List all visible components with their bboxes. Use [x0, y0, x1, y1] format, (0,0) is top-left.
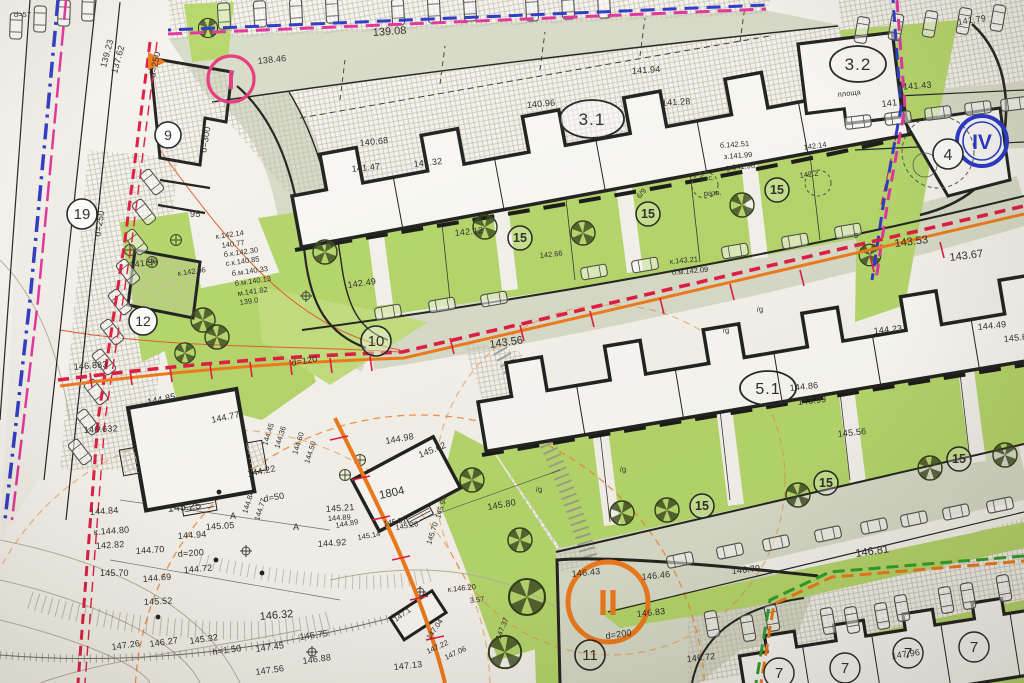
yard-label-15: 15 [819, 476, 833, 490]
elevation-label: 144.84 [89, 505, 118, 517]
street-number-11: 11 [582, 647, 598, 664]
building-label-7: 7 [841, 660, 849, 677]
note-label: /g [756, 304, 763, 314]
building-label-3-2: 3.2 [845, 55, 872, 74]
note-label: /g [722, 325, 729, 335]
building-label-4: 4 [944, 147, 953, 164]
yard-label-15: 15 [641, 207, 655, 221]
street-number-19: 19 [74, 206, 91, 223]
elevation-label: 146.632 [84, 423, 118, 435]
elevation-label: 144.92 [317, 537, 346, 549]
note-label: 9 [854, 231, 858, 240]
car-icon [844, 114, 871, 129]
building-label-7: 7 [775, 665, 783, 682]
elevation-label: 141.94 [631, 64, 660, 76]
elevation-label: 145.52 [144, 596, 173, 607]
note-label: разв. [704, 188, 722, 198]
young-tree-icon [340, 470, 351, 481]
note-label: /g [619, 464, 626, 474]
dimension-label: d=200 [177, 547, 204, 559]
street-number-9: 9 [164, 127, 172, 143]
yard-label-15: 15 [770, 183, 784, 197]
yard-label-15: 15 [513, 231, 527, 245]
car-icon [253, 1, 266, 28]
elevation-label: 139.08 [372, 25, 406, 39]
car-icon [964, 100, 991, 115]
note-label: бос. [700, 173, 715, 183]
elevation-label: 145.05 [205, 520, 234, 532]
site-plan-drawing: I II IV 3.1 3.2 5.1 4 7 7 7 7 9 19 [0, 0, 1024, 683]
young-tree-icon [171, 235, 182, 246]
elevation-label: 141 [881, 97, 898, 109]
note-label: /g [535, 484, 542, 494]
elevation-label: 141.28 [661, 96, 690, 108]
elevation-label: 144.70 [135, 544, 164, 556]
elevation-label: 145.6 [1003, 332, 1024, 344]
yard-label-15: 15 [952, 452, 966, 466]
building-marker-4: 4 [933, 139, 963, 169]
building-label-7: 7 [970, 639, 978, 656]
benchmark-dot [260, 571, 265, 576]
site-plan-photo: I II IV 3.1 3.2 5.1 4 7 7 7 7 9 19 [0, 0, 1024, 683]
elevation-label: 3.57 [469, 595, 484, 605]
car-icon [34, 6, 47, 32]
elevation-label: 145.70 [100, 568, 129, 578]
building-label-5-1: 5.1 [755, 381, 780, 398]
car-icon [217, 3, 230, 30]
street-number-10: 10 [368, 333, 385, 350]
dimension-label: d=57 [14, 10, 31, 19]
car-icon [325, 0, 338, 23]
yard-label-15: 15 [695, 499, 709, 513]
benchmark-dot [156, 615, 161, 620]
benchmark-dot [217, 490, 222, 495]
zone-label-II: II [598, 582, 618, 623]
car-icon [289, 0, 302, 25]
zone-label-IV: IV [972, 131, 992, 154]
car-icon [82, 0, 95, 21]
car-icon [884, 110, 911, 125]
car-icon [1000, 96, 1024, 111]
building-label-3-1: 3.1 [579, 110, 606, 129]
elevation-label: 142.82 [95, 539, 124, 551]
building-marker-3-1: 3.1 [560, 100, 624, 138]
benchmark-dot [214, 558, 219, 563]
note-label: A [230, 511, 236, 521]
elevation-label: 95 [190, 209, 200, 219]
elevation-label: 144.94 [177, 529, 206, 541]
street-number-12: 12 [135, 313, 151, 329]
zone-label-I: I [227, 65, 235, 95]
elevation-label: 144.23 [0, 0, 29, 2]
note-label: A [293, 522, 299, 532]
car-icon [924, 105, 951, 120]
